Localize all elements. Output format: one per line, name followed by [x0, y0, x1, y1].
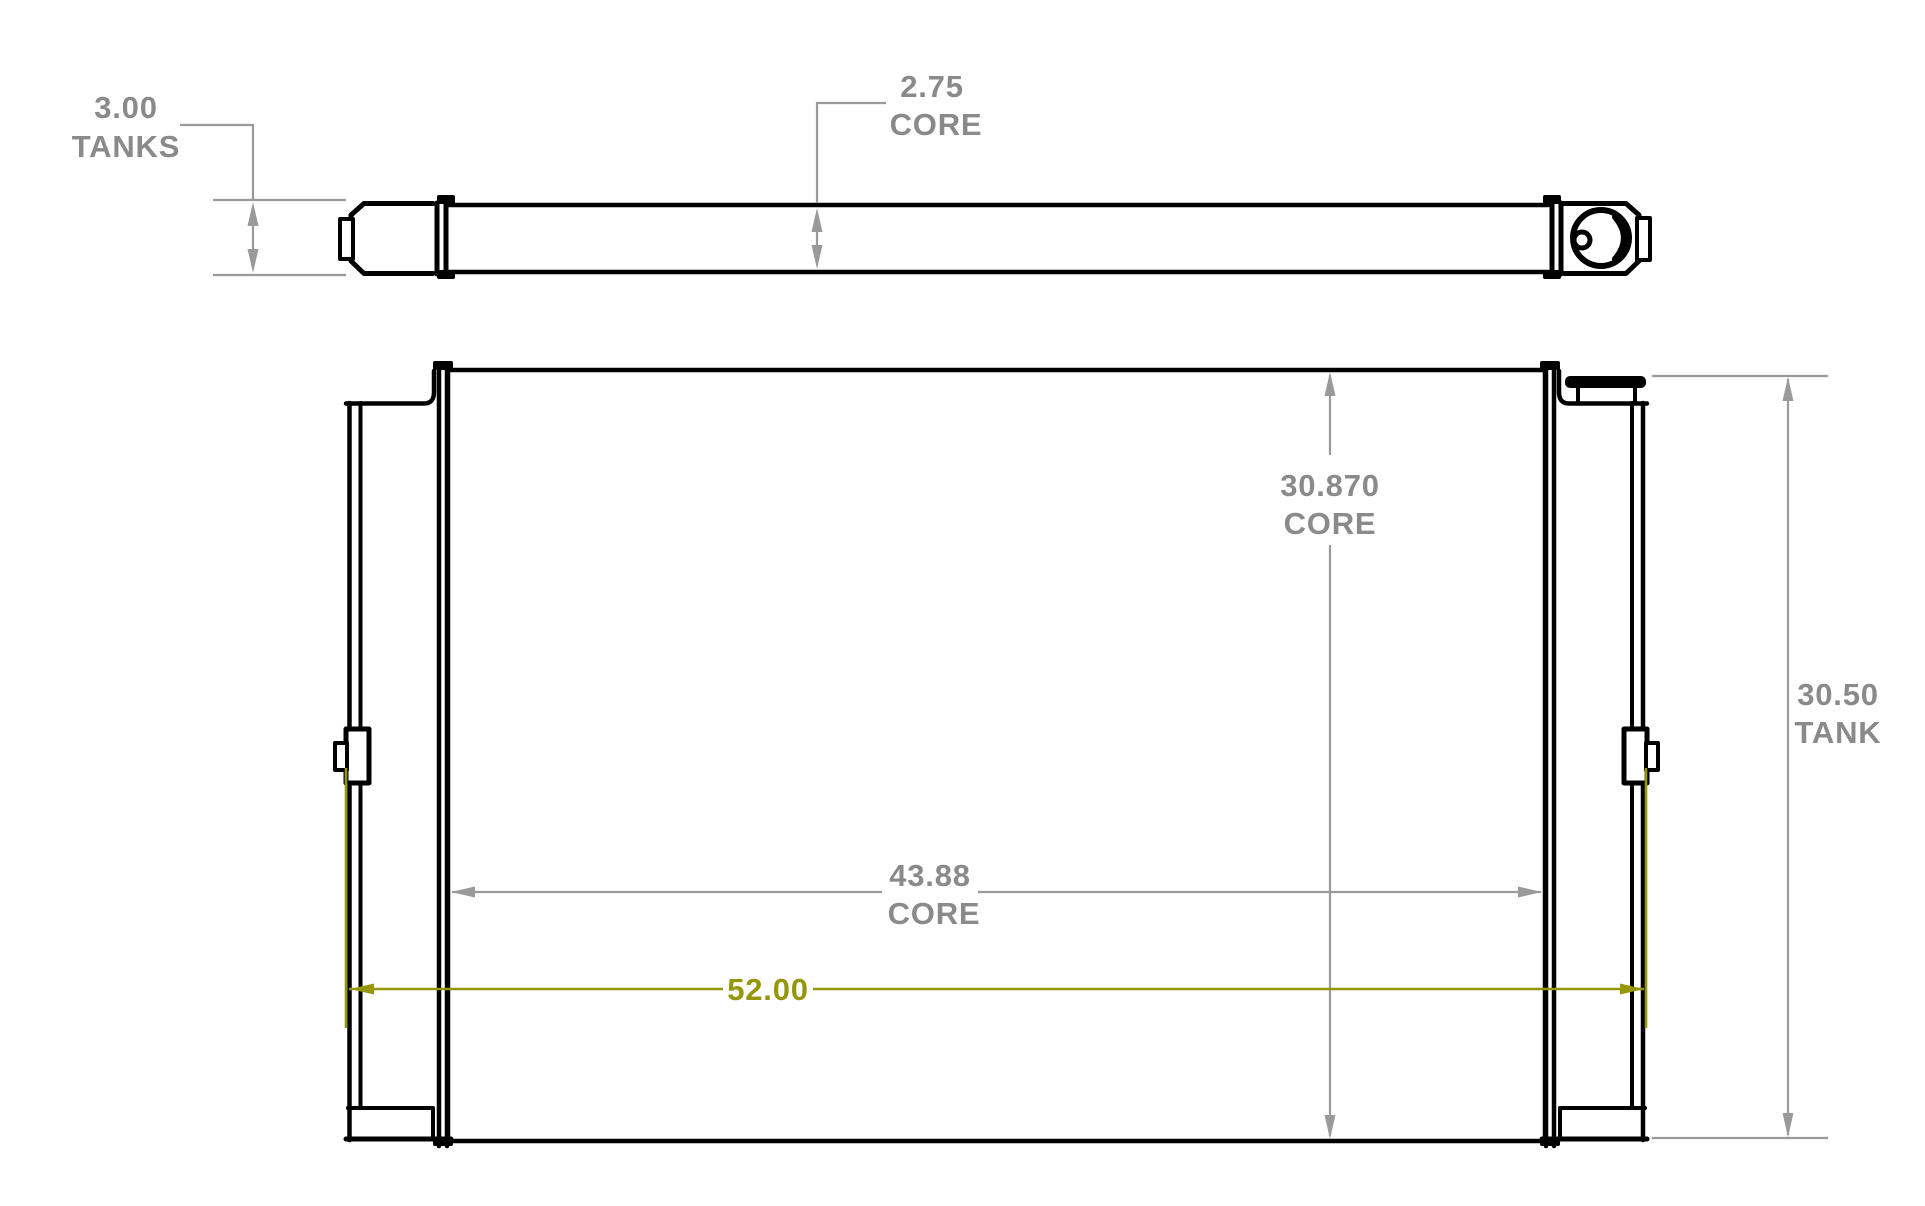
dim-tanks-value: 3.00: [94, 90, 158, 125]
arrowhead-up-icon: [1783, 377, 1794, 401]
left-joint-tab: [433, 361, 453, 370]
front-view: [335, 361, 1658, 1146]
dim-core-thk-label: CORE: [890, 107, 983, 142]
right-joint-tab: [1543, 195, 1561, 204]
dim-tank-height-label: TANK: [1795, 715, 1882, 750]
arrowhead-down-icon: [1325, 1115, 1336, 1139]
dim-core-height-label: CORE: [1284, 506, 1377, 541]
filler-cap-vent-circle: [1574, 232, 1590, 248]
left-mounting-boss: [346, 729, 369, 783]
right-mounting-boss: [1624, 729, 1647, 783]
dimension-tanks-thickness: 3.00 TANKS: [72, 90, 346, 275]
right-tank-foot: [1560, 1108, 1645, 1139]
arrowhead-down-icon: [1783, 1113, 1794, 1137]
left-tank-boss: [340, 219, 353, 259]
top-view: [340, 195, 1650, 279]
dimension-core-width: 43.88 CORE: [451, 858, 1542, 931]
right-joint-tab: [1543, 270, 1561, 279]
left-tank-foot: [348, 1108, 433, 1139]
dim-core-thk-value: 2.75: [900, 69, 964, 104]
arrowhead-left-icon: [451, 887, 475, 898]
leader-line: [817, 103, 886, 203]
drawing-canvas: 3.00 TANKS 2.75 CORE: [0, 0, 1925, 1206]
right-tank-boss: [1637, 218, 1650, 260]
left-tank-top: [346, 371, 434, 404]
arrowhead-up-icon: [1325, 372, 1336, 396]
left-joint-tab: [437, 270, 455, 279]
core-face: [448, 370, 1545, 1141]
dim-overall-width-value: 52.00: [727, 972, 809, 1007]
left-tank-profile: [351, 204, 433, 274]
dim-core-height-value: 30.870: [1280, 468, 1380, 503]
dim-tanks-label: TANKS: [72, 129, 180, 164]
right-joint-tab: [1540, 361, 1560, 370]
dim-core-width-label: CORE: [888, 896, 981, 931]
dimension-core-height: 30.870 CORE: [1280, 372, 1380, 1139]
right-boss-tab: [1646, 743, 1658, 770]
arrowhead-right-icon: [1518, 887, 1542, 898]
dimension-core-thickness: 2.75 CORE: [812, 69, 983, 269]
dim-core-width-value: 43.88: [889, 858, 971, 893]
dimension-tank-height: 30.50 TANK: [1652, 376, 1882, 1138]
dimension-overall-width: 52.00: [346, 768, 1646, 1028]
left-joint-tab: [437, 195, 455, 204]
filler-neck-cap: [1565, 376, 1646, 388]
drawing-sheet: 3.00 TANKS 2.75 CORE: [0, 0, 1925, 1206]
leader-line: [180, 125, 253, 199]
dim-tank-height-value: 30.50: [1797, 677, 1879, 712]
left-boss-tab: [335, 743, 347, 770]
